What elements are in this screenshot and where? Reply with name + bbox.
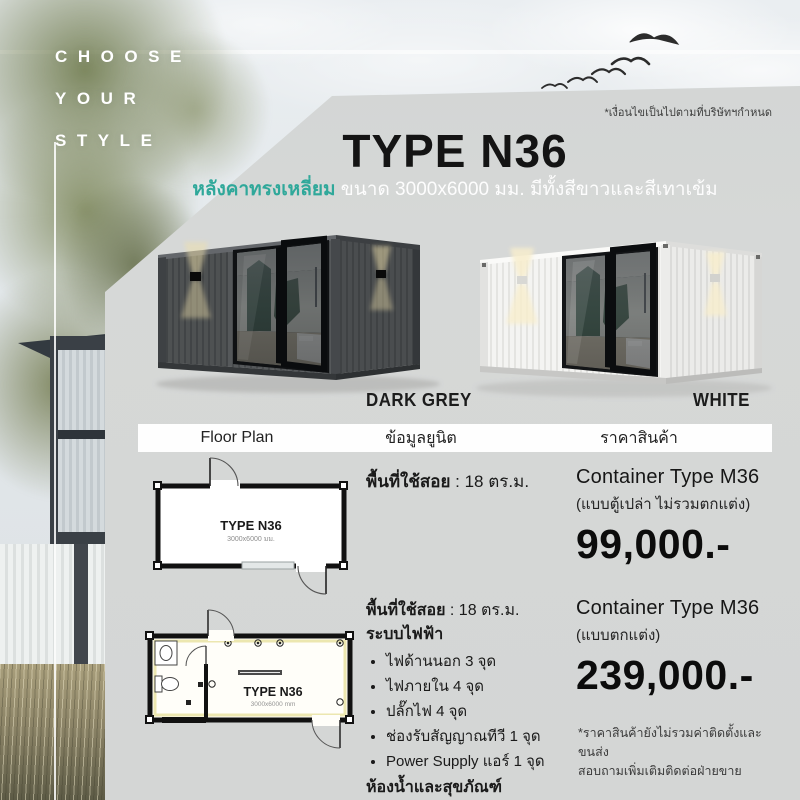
column-header-price: ราคาสินค้า (506, 426, 772, 451)
dark-grey-container-render (148, 212, 448, 402)
electric-system-header: ระบบไฟฟ้า (366, 623, 574, 647)
page-subtitle: หลังคาทรงเหลี่ยม ขนาด 3000x6000 มม. มีทั… (175, 174, 735, 204)
white-container-render (462, 220, 780, 410)
product-variant-note: (แบบตกแต่ง) (576, 623, 786, 647)
photo-grass (0, 664, 106, 800)
tagline-line-3: STYLE (55, 120, 192, 162)
price-amount: 99,000.- (576, 521, 786, 568)
list-item: ปลั๊กไฟ 4 จุด (386, 699, 574, 724)
list-item: ช่องรับสัญญาณทีวี 1 จุด (386, 724, 574, 749)
column-header-floor-plan: Floor Plan (138, 429, 336, 447)
flyer-canvas: CHOOSE YOUR STYLE *เงื่อนไขเป็นไปตามที่บ… (0, 0, 800, 800)
column-header-unit-info: ข้อมูลยูนิต (336, 426, 506, 451)
subtitle-highlight: หลังคาทรงเหลี่ยม (192, 179, 335, 200)
list-item: Power Supply แอร์ 1 จุด (386, 749, 574, 774)
area-label: พื้นที่ใช้สอย (366, 472, 450, 491)
photo-window-bar (58, 430, 106, 439)
tagline-line-1: CHOOSE (55, 36, 192, 78)
row2-price-block: Container Type M36 (แบบตกแต่ง) 239,000.- (576, 597, 786, 699)
plan-name-label: TYPE N36 (220, 518, 281, 533)
photo-dark-post (74, 544, 88, 669)
conditions-note: *เงื่อนไขเป็นไปตามที่บริษัทฯกำหนด (604, 103, 772, 121)
disclaimer-line-1: *ราคาสินค้ายังไม่รวมค่าติดตั้งและขนส่ง (578, 724, 788, 762)
container-home-photo (0, 300, 106, 800)
row2-unit-info: พื้นที่ใช้สอย : 18 ตร.ม. ระบบไฟฟ้า ไฟด้า… (366, 599, 574, 800)
plan-name-label: TYPE N36 (243, 685, 302, 699)
glass-door (562, 246, 658, 377)
variant-label-dark-grey: DARK GREY (366, 390, 472, 411)
price-disclaimer: *ราคาสินค้ายังไม่รวมค่าติดตั้งและขนส่ง ส… (578, 724, 788, 781)
door-symbol (208, 610, 234, 641)
area-label: พื้นที่ใช้สอย (366, 602, 445, 619)
bathroom-note: ห้องน้ำและสุขภัณฑ์ (366, 776, 574, 800)
brand-tagline: CHOOSE YOUR STYLE (55, 36, 192, 162)
variant-label-white: WHITE (693, 390, 750, 411)
floor-plan-basic: TYPE N36 3000x6000 มม. (150, 456, 356, 596)
page-title: TYPE N36 (255, 124, 655, 178)
list-item: ไฟภายใน 4 จุด (386, 674, 574, 699)
area-value: : 18 ตร.ม. (450, 472, 529, 491)
door-symbol (296, 561, 326, 594)
row1-area-info: พื้นที่ใช้สอย : 18 ตร.ม. (366, 468, 529, 495)
photo-corrugated-wall (0, 544, 106, 666)
row2-area-info: พื้นที่ใช้สอย : 18 ตร.ม. (366, 599, 574, 623)
list-item: ไฟด้านนอก 3 จุด (386, 649, 574, 674)
row1-price-block: Container Type M36 (แบบตู้เปล่า ไม่รวมตก… (576, 466, 786, 568)
product-variant-note: (แบบตู้เปล่า ไม่รวมตกแต่ง) (576, 492, 786, 516)
electric-feature-list: ไฟด้านนอก 3 จุด ไฟภายใน 4 จุด ปลั๊กไฟ 4 … (366, 649, 574, 774)
glass-door (233, 239, 329, 373)
plan-dims-label: 3000x6000 mm (251, 701, 296, 708)
vertical-divider-line (54, 142, 56, 800)
product-name: Container Type M36 (576, 597, 786, 620)
price-amount: 239,000.- (576, 652, 786, 699)
plan-dims-label: 3000x6000 มม. (227, 536, 275, 543)
door-symbol (210, 458, 240, 491)
tagline-line-2: YOUR (55, 78, 192, 120)
subtitle-rest: ขนาด 3000x6000 มม. มีทั้งสีขาวและสีเทาเข… (336, 179, 718, 200)
product-name: Container Type M36 (576, 466, 786, 489)
disclaimer-line-2: สอบถามเพิ่มเติมติดต่อฝ่ายขาย (578, 762, 788, 781)
floor-plan-furnished: TYPE N36 3000x6000 mm (142, 608, 360, 758)
door-symbol (312, 715, 340, 748)
table-header-bar: Floor Plan ข้อมูลยูนิต ราคาสินค้า (138, 424, 772, 452)
area-value: : 18 ตร.ม. (445, 602, 519, 619)
photo-window-glass (58, 350, 106, 532)
